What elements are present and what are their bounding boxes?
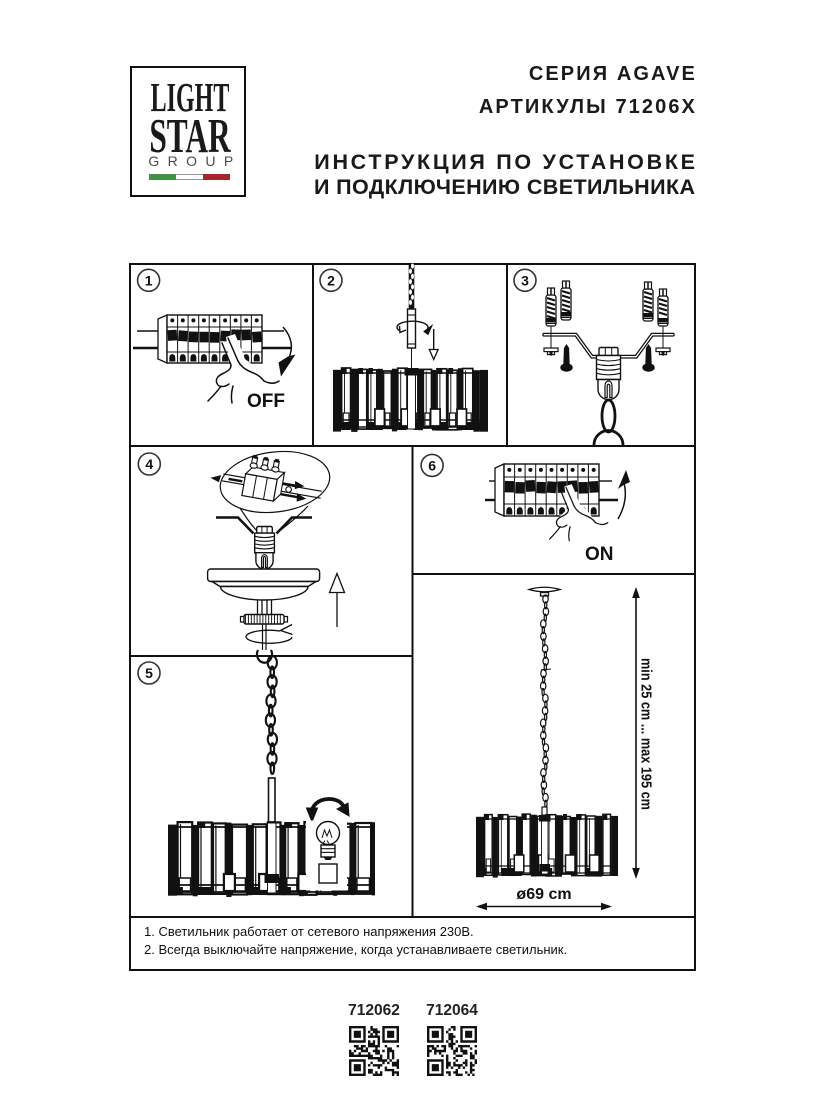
svg-text:2: 2 <box>327 272 335 288</box>
svg-text:712064: 712064 <box>426 1002 478 1019</box>
svg-text:ON: ON <box>585 544 614 565</box>
svg-text:5: 5 <box>145 665 153 681</box>
svg-text:3: 3 <box>521 272 529 288</box>
svg-text:4: 4 <box>145 456 153 472</box>
svg-text:712062: 712062 <box>348 1002 400 1019</box>
svg-text:ø69 cm: ø69 cm <box>516 886 571 903</box>
svg-text:OFF: OFF <box>247 391 285 412</box>
svg-text:min 25 cm ... max 195 cm: min 25 cm ... max 195 cm <box>638 658 655 810</box>
svg-text:1. Светильник работает от сете: 1. Светильник работает от сетевого напря… <box>144 924 474 939</box>
svg-text:6: 6 <box>428 457 436 473</box>
svg-text:2. Всегда выключайте напряжени: 2. Всегда выключайте напряжение, когда у… <box>144 942 567 957</box>
svg-text:1: 1 <box>145 272 153 288</box>
